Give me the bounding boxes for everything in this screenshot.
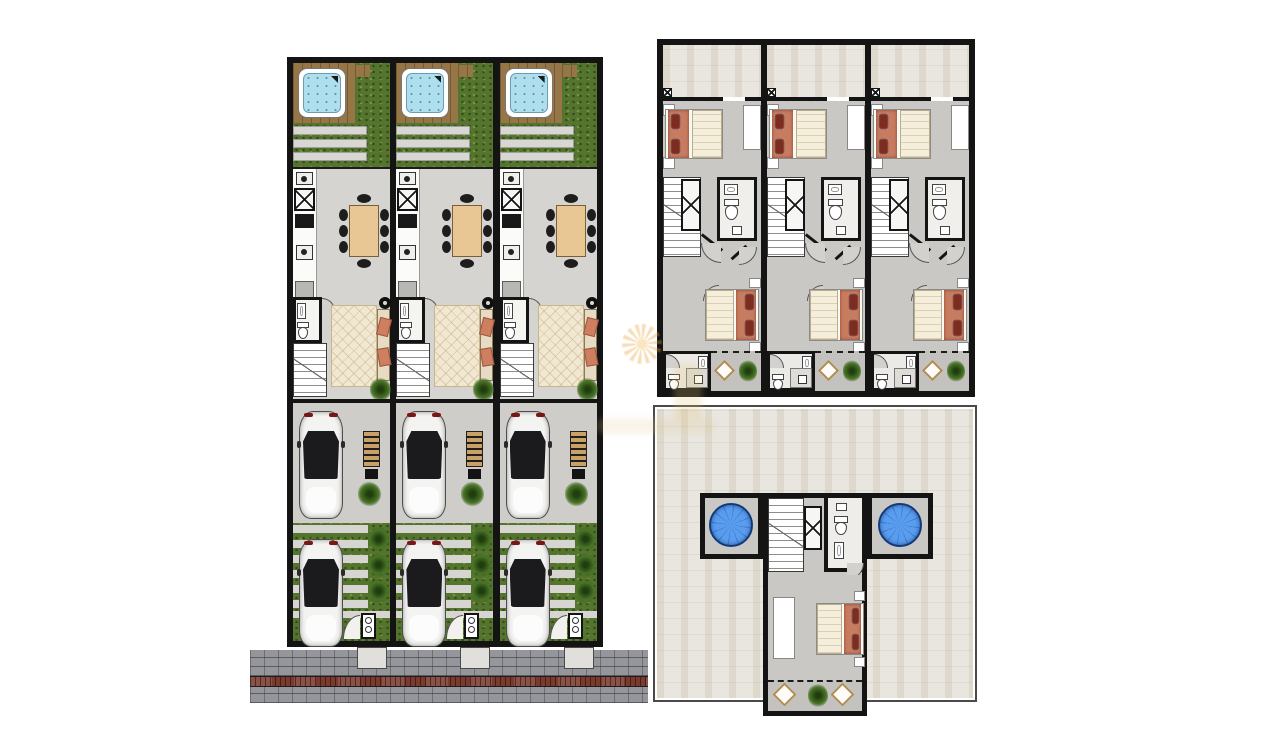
living-room-rug bbox=[434, 305, 480, 387]
garage bbox=[500, 399, 597, 523]
plant bbox=[370, 378, 391, 401]
rear-garden bbox=[293, 63, 390, 169]
plant bbox=[843, 360, 861, 382]
nightstand bbox=[854, 591, 865, 601]
terrace-door-opening bbox=[827, 97, 849, 101]
dining-chair bbox=[357, 259, 371, 268]
sink-icon bbox=[834, 542, 844, 559]
curb-red-band bbox=[250, 676, 648, 687]
rear-balcony bbox=[919, 351, 969, 391]
living-room-rug bbox=[538, 305, 584, 387]
kitchen-dining-living bbox=[396, 169, 493, 399]
dining-table bbox=[349, 205, 379, 257]
floor-plan-canvas bbox=[0, 0, 1280, 734]
sink-unit-icon bbox=[294, 188, 315, 211]
dining-chair bbox=[442, 225, 451, 237]
shrub bbox=[471, 579, 492, 603]
double-bed bbox=[809, 289, 863, 341]
floor-lamp-icon bbox=[379, 297, 391, 309]
dining-chair bbox=[546, 209, 555, 221]
roof-solarium-plan bbox=[653, 405, 978, 721]
stair-shaft-icon bbox=[804, 506, 822, 550]
townhouse-unit-ground bbox=[396, 63, 493, 641]
fixture-icon bbox=[732, 226, 742, 235]
sink-icon bbox=[400, 303, 409, 319]
toilet-icon bbox=[932, 199, 947, 220]
dining-chair bbox=[460, 259, 474, 268]
floor-lamp-icon bbox=[482, 297, 494, 309]
door-swing bbox=[947, 247, 965, 265]
staircase bbox=[500, 343, 534, 397]
gate-post-meter bbox=[361, 613, 376, 639]
toilet-icon bbox=[400, 322, 412, 339]
door-swing bbox=[843, 247, 861, 265]
dining-chair bbox=[483, 209, 492, 221]
side-table-icon bbox=[922, 360, 943, 381]
shrub bbox=[575, 527, 596, 551]
car-top-view bbox=[402, 411, 446, 519]
terrace-door-opening bbox=[723, 97, 745, 101]
kitchen-dining-living bbox=[500, 169, 597, 399]
townhouse-unit-first bbox=[767, 45, 865, 391]
double-bed bbox=[665, 109, 723, 159]
kitchen-dining-living bbox=[293, 169, 390, 399]
guest-toilet bbox=[396, 297, 425, 343]
nightstand bbox=[957, 278, 969, 288]
jacuzzi-water bbox=[303, 73, 341, 113]
shrub bbox=[575, 553, 596, 577]
door-swing bbox=[739, 247, 757, 265]
plant bbox=[947, 360, 965, 382]
garage bbox=[396, 399, 493, 523]
townhouse-unit-ground bbox=[293, 63, 390, 641]
pool-room-left bbox=[700, 493, 763, 559]
townhouse-unit-first bbox=[871, 45, 969, 391]
double-bed bbox=[769, 109, 827, 159]
townhouse-unit-first bbox=[663, 45, 761, 391]
rear-balcony bbox=[711, 351, 761, 391]
oven-icon bbox=[295, 214, 314, 228]
dining-chair bbox=[339, 241, 348, 253]
side-table-icon bbox=[714, 360, 735, 381]
floor-lamp-icon bbox=[586, 297, 598, 309]
jacuzzi-water bbox=[510, 73, 548, 113]
dining-chair bbox=[339, 209, 348, 221]
shrub bbox=[368, 553, 389, 577]
terrace-door-opening bbox=[931, 97, 953, 101]
shrub bbox=[368, 527, 389, 551]
driveway bbox=[293, 523, 390, 641]
bathroom bbox=[925, 177, 965, 241]
fixture-icon bbox=[836, 226, 846, 235]
planter-pot bbox=[572, 469, 585, 479]
garage bbox=[293, 399, 390, 523]
dining-chair bbox=[339, 225, 348, 237]
appliance-icon bbox=[296, 245, 313, 260]
rear-garden bbox=[500, 63, 597, 169]
dining-chair bbox=[564, 259, 578, 268]
glass-balustrade bbox=[815, 351, 865, 353]
entrance-porch bbox=[460, 647, 490, 669]
dining-chair bbox=[357, 194, 371, 203]
shower-tray bbox=[790, 368, 812, 388]
entrance-porch bbox=[357, 647, 387, 669]
walkway-strip bbox=[396, 126, 470, 135]
wardrobe bbox=[951, 105, 969, 150]
appliance-icon bbox=[503, 245, 520, 260]
storage-shelf bbox=[570, 431, 587, 467]
dining-chair bbox=[483, 241, 492, 253]
car-top-view bbox=[506, 411, 550, 519]
sofa bbox=[584, 309, 597, 381]
wardrobe bbox=[743, 105, 761, 150]
staircase bbox=[396, 343, 430, 397]
nightstand bbox=[853, 278, 865, 288]
toilet-icon bbox=[834, 516, 848, 535]
roof-bathroom bbox=[824, 498, 862, 572]
sofa bbox=[480, 309, 493, 381]
dining-chair bbox=[483, 225, 492, 237]
front-terrace bbox=[871, 45, 969, 97]
nightstand bbox=[854, 657, 865, 667]
appliance-icon bbox=[399, 245, 416, 260]
jacuzzi bbox=[401, 68, 449, 118]
shrub bbox=[368, 579, 389, 603]
door-swing bbox=[805, 243, 825, 263]
toilet-icon bbox=[297, 322, 309, 339]
timber-deck-step bbox=[458, 65, 473, 77]
toilet-icon bbox=[724, 199, 739, 220]
dining-chair bbox=[380, 241, 389, 253]
plant bbox=[739, 360, 757, 382]
dining-chair bbox=[380, 209, 389, 221]
driveway bbox=[396, 523, 493, 641]
jacuzzi-water bbox=[406, 73, 444, 113]
walkway-strip bbox=[396, 139, 470, 148]
planter-pot bbox=[365, 469, 378, 479]
glass-balustrade bbox=[919, 351, 969, 353]
lounge-chair-icon bbox=[772, 682, 796, 706]
cooktop-icon bbox=[296, 172, 313, 185]
toilet-icon bbox=[504, 322, 516, 339]
shower-tray bbox=[686, 368, 708, 388]
planter-pot bbox=[468, 469, 481, 479]
walkway-strip bbox=[293, 139, 367, 148]
shrub bbox=[471, 527, 492, 551]
plant bbox=[808, 684, 828, 707]
storage-shelf bbox=[363, 431, 380, 467]
dining-chair bbox=[546, 225, 555, 237]
walkway-strip bbox=[500, 126, 574, 135]
staircase bbox=[293, 343, 327, 397]
sink-unit-icon bbox=[397, 188, 418, 211]
toilet-icon bbox=[668, 374, 680, 390]
first-floor-building bbox=[657, 39, 975, 397]
plant bbox=[358, 482, 381, 506]
car-top-view bbox=[299, 539, 343, 647]
car-top-view bbox=[506, 539, 550, 647]
dining-chair bbox=[587, 209, 596, 221]
walkway-strip bbox=[500, 152, 574, 161]
living-room-rug bbox=[331, 305, 377, 387]
plunge-pool-icon bbox=[878, 503, 922, 547]
jacuzzi bbox=[505, 68, 553, 118]
glass-balustrade bbox=[768, 680, 862, 682]
sink-icon bbox=[504, 303, 513, 319]
pool-room-right bbox=[867, 493, 933, 559]
plant bbox=[473, 378, 494, 401]
dining-chair bbox=[460, 194, 474, 203]
timber-deck-step bbox=[562, 65, 577, 77]
double-bed bbox=[873, 109, 931, 159]
column-marker-icon bbox=[663, 88, 672, 97]
terrace-wall bbox=[871, 97, 969, 101]
dining-chair bbox=[380, 225, 389, 237]
rear-balcony bbox=[815, 351, 865, 391]
walkway-strip bbox=[396, 152, 470, 161]
toilet-icon bbox=[772, 374, 784, 390]
stair-shaft-icon bbox=[785, 179, 805, 231]
walkway-strip bbox=[500, 139, 574, 148]
dining-chair bbox=[587, 241, 596, 253]
dining-table bbox=[452, 205, 482, 257]
car-top-view bbox=[402, 539, 446, 647]
wardrobe bbox=[773, 597, 795, 659]
gate-post-meter bbox=[568, 613, 583, 639]
sink-icon bbox=[297, 303, 306, 319]
roof-bedroom bbox=[763, 575, 867, 680]
double-bed bbox=[705, 289, 759, 341]
toilet-icon bbox=[828, 199, 843, 220]
lounge-chair-icon bbox=[830, 682, 854, 706]
ground-floor-plan bbox=[250, 50, 648, 710]
car-top-view bbox=[299, 411, 343, 519]
glass-balustrade bbox=[711, 351, 761, 353]
nightstand bbox=[749, 278, 761, 288]
oven-icon bbox=[398, 214, 417, 228]
oven-icon bbox=[502, 214, 521, 228]
sofa bbox=[377, 309, 390, 381]
column-marker-icon bbox=[871, 88, 880, 97]
walkway-strip bbox=[293, 152, 367, 161]
plant bbox=[577, 378, 598, 401]
roof-balcony bbox=[763, 680, 867, 716]
faucet-icon bbox=[836, 503, 847, 511]
staircase bbox=[768, 498, 804, 572]
double-bed bbox=[913, 289, 967, 341]
guest-toilet bbox=[293, 297, 322, 343]
door-swing bbox=[701, 243, 721, 263]
shower-tray bbox=[894, 368, 916, 388]
jacuzzi bbox=[298, 68, 346, 118]
shrub bbox=[471, 553, 492, 577]
double-bed bbox=[816, 603, 864, 655]
terrace-wall bbox=[663, 97, 761, 101]
ground-floor-building bbox=[287, 57, 603, 647]
driveway bbox=[500, 523, 597, 641]
wardrobe bbox=[847, 105, 865, 150]
shrub bbox=[575, 579, 596, 603]
bathroom bbox=[821, 177, 861, 241]
townhouse-unit-ground bbox=[500, 63, 597, 641]
entrance-porch bbox=[564, 647, 594, 669]
front-terrace bbox=[663, 45, 761, 97]
kitchen-counter bbox=[293, 169, 317, 307]
plant bbox=[461, 482, 484, 506]
column-marker-icon bbox=[767, 88, 776, 97]
stair-shaft-icon bbox=[681, 179, 701, 231]
walkway-strip bbox=[293, 126, 367, 135]
dining-chair bbox=[564, 194, 578, 203]
stair-shaft-icon bbox=[889, 179, 909, 231]
plant bbox=[565, 482, 588, 506]
sink-icon bbox=[828, 184, 842, 195]
kitchen-counter bbox=[500, 169, 524, 307]
sink-icon bbox=[932, 184, 946, 195]
cooktop-icon bbox=[399, 172, 416, 185]
sink-unit-icon bbox=[501, 188, 522, 211]
dining-chair bbox=[442, 241, 451, 253]
sink-icon bbox=[724, 184, 738, 195]
guest-toilet bbox=[500, 297, 529, 343]
rear-garden bbox=[396, 63, 493, 169]
dining-chair bbox=[546, 241, 555, 253]
storage-shelf bbox=[466, 431, 483, 467]
bathroom bbox=[717, 177, 757, 241]
side-table-icon bbox=[818, 360, 839, 381]
plunge-pool-icon bbox=[709, 503, 753, 547]
fixture-icon bbox=[940, 226, 950, 235]
first-floor-plan bbox=[655, 37, 977, 399]
kitchen-counter bbox=[396, 169, 420, 307]
front-terrace bbox=[767, 45, 865, 97]
dining-chair bbox=[587, 225, 596, 237]
door-swing bbox=[909, 243, 929, 263]
toilet-icon bbox=[876, 374, 888, 390]
dining-table bbox=[556, 205, 586, 257]
gate-post-meter bbox=[464, 613, 479, 639]
cooktop-icon bbox=[503, 172, 520, 185]
dining-chair bbox=[442, 209, 451, 221]
timber-deck-step bbox=[355, 65, 370, 77]
terrace-wall bbox=[767, 97, 865, 101]
